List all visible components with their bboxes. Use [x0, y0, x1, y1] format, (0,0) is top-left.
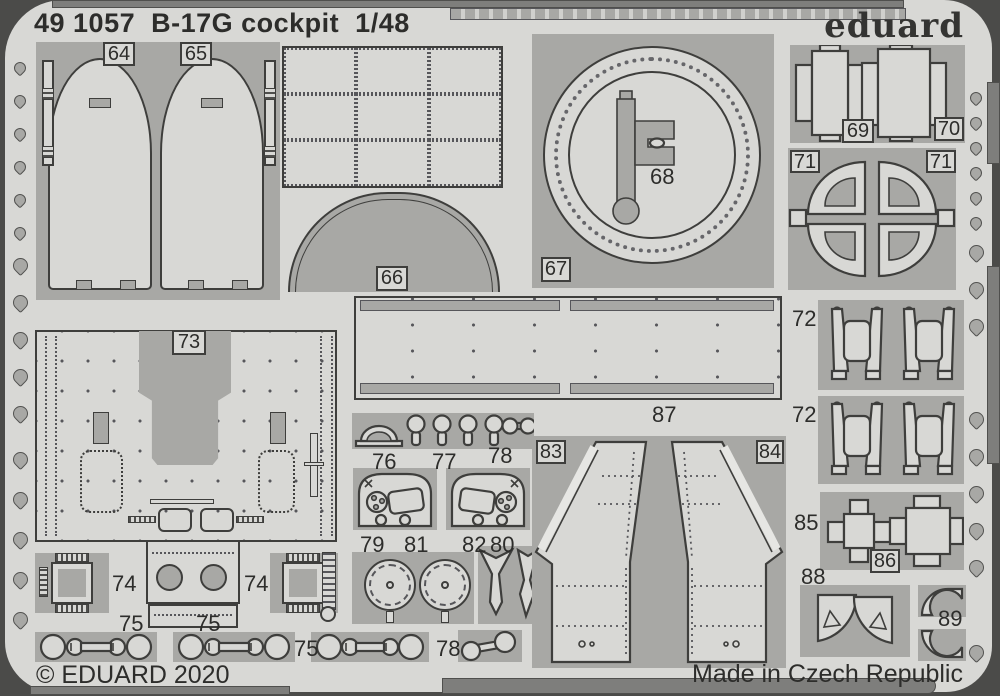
part-80-label: 80	[490, 532, 514, 558]
hinge-pin-knurl	[42, 88, 54, 100]
part-65-label: 65	[180, 42, 212, 66]
part-70-label: 70	[934, 117, 964, 141]
part-75-rod	[173, 632, 295, 662]
origin-text: Made in Czech Republic	[692, 660, 963, 689]
part-73-label: 73	[172, 330, 206, 355]
part-86-label: 86	[870, 549, 900, 573]
pe-fret-sheet: 49 1057 B-17G cockpit 1/48 eduard © EDUA…	[0, 0, 1000, 696]
part-89-label: 89	[938, 606, 962, 632]
panel-cell	[356, 94, 428, 140]
floor-slot	[93, 412, 109, 444]
wheel-hub	[386, 581, 394, 589]
armor-notch	[120, 280, 136, 290]
fold-hatch	[55, 553, 89, 562]
part-68-bracket	[568, 71, 738, 241]
floor-detail-frame	[200, 508, 234, 532]
part-64-65-group	[36, 42, 280, 300]
part-71-label: 71	[790, 150, 820, 173]
part-78-link	[458, 630, 522, 662]
rivet-strip	[320, 336, 333, 536]
part-88-label: 88	[801, 564, 825, 590]
floor-detail-bar	[150, 499, 214, 504]
part-74-label: 74	[112, 571, 136, 597]
part-81-label: 81	[404, 532, 428, 558]
part-64-armor-plate	[48, 58, 152, 290]
panel-rail	[360, 300, 560, 311]
armor-notch	[232, 280, 248, 290]
part-84-label: 84	[756, 440, 784, 464]
lightening-hole	[156, 564, 183, 591]
fold-hatch	[39, 567, 48, 597]
hinge-pin-knurl	[42, 146, 54, 158]
sheet-header: 49 1057 B-17G cockpit 1/48	[34, 8, 410, 39]
panel-cell	[284, 48, 356, 94]
part-72-label: 72	[792, 402, 816, 428]
part-72-group-b	[818, 396, 964, 484]
part-88-group	[800, 585, 910, 657]
fold-hatch	[55, 604, 89, 613]
part-68-label: 68	[650, 164, 674, 190]
part-74-label: 74	[244, 571, 268, 597]
trim-wheel-group	[352, 552, 474, 624]
armor-slot	[201, 98, 223, 108]
part-64-label: 64	[103, 42, 135, 66]
part-72-label: 72	[792, 306, 816, 332]
part-89-bracket	[918, 629, 966, 661]
floor-hatch-outline	[80, 450, 123, 513]
ladder-strip	[322, 552, 336, 610]
part-71-label: 71	[926, 150, 956, 173]
part-75-label: 75	[196, 611, 220, 637]
eduard-logo: eduard	[824, 6, 964, 46]
floor-sub-tab	[148, 604, 238, 628]
scale: 1/48	[355, 8, 410, 39]
part-85-label: 85	[794, 510, 818, 536]
part-65-armor-plate	[160, 58, 264, 290]
wheel-stem	[386, 611, 394, 623]
part-79-label: 79	[360, 532, 384, 558]
panel-cell	[429, 94, 501, 140]
kit-title: B-17G cockpit	[151, 8, 339, 39]
part-75-label: 75	[294, 636, 318, 662]
box-center	[289, 569, 317, 597]
part-69-label: 69	[842, 119, 874, 143]
part-75-rod	[311, 632, 429, 662]
hinge-pin-knurl	[264, 146, 276, 158]
part-76-label: 76	[372, 449, 396, 475]
part-74-group	[35, 553, 109, 613]
copyright-text: © EDUARD 2020	[36, 661, 230, 690]
rivet-row	[152, 552, 234, 554]
panel-cell	[356, 48, 428, 94]
armor-notch	[188, 280, 204, 290]
part-66-panel-grid	[282, 46, 503, 188]
part-83-84-group	[532, 436, 786, 668]
wheel-stem	[441, 611, 449, 623]
small-strip-bar	[304, 462, 324, 466]
right-rail-lower	[987, 266, 1000, 464]
rivet-strip	[45, 336, 57, 536]
part-72-group-a	[818, 300, 964, 390]
floor-detail-bar	[128, 516, 156, 523]
part-79-housing	[353, 468, 437, 530]
part-78-label: 78	[436, 636, 460, 662]
panel-cell	[284, 94, 356, 140]
panel-cell	[429, 140, 501, 186]
floor-slot	[270, 412, 286, 444]
panel-cell	[429, 48, 501, 94]
part-78-label: 78	[488, 443, 512, 469]
ladder-strip-end	[320, 606, 336, 622]
panel-rail	[360, 383, 560, 394]
part-81-housing	[446, 468, 530, 530]
fold-hatch	[286, 553, 320, 562]
part-66-label: 66	[376, 266, 408, 291]
part-87-panel	[354, 296, 782, 400]
wheel-hub	[441, 581, 449, 589]
panel-cell	[356, 140, 428, 186]
armor-notch	[76, 280, 92, 290]
floor-detail-bar	[236, 516, 264, 523]
right-rail-upper	[987, 82, 1000, 164]
panel-rail	[570, 300, 774, 311]
part-67-label: 67	[541, 257, 571, 282]
panel-rail	[570, 383, 774, 394]
box-center	[58, 569, 86, 597]
catalog-number: 49 1057	[34, 8, 135, 39]
floor-hatch-outline	[258, 450, 295, 513]
floor-detail-frame	[158, 508, 192, 532]
armor-slot	[89, 98, 111, 108]
part-83-label: 83	[536, 440, 566, 464]
part-82-label: 82	[462, 532, 486, 558]
fold-hatch	[286, 604, 320, 613]
part-75-label: 75	[119, 611, 143, 637]
lightening-hole	[200, 564, 227, 591]
panel-cell	[284, 140, 356, 186]
part-77-label: 77	[432, 449, 456, 475]
top-rail	[52, 0, 904, 8]
hinge-pin-knurl	[264, 88, 276, 100]
part-87-label: 87	[652, 402, 676, 428]
